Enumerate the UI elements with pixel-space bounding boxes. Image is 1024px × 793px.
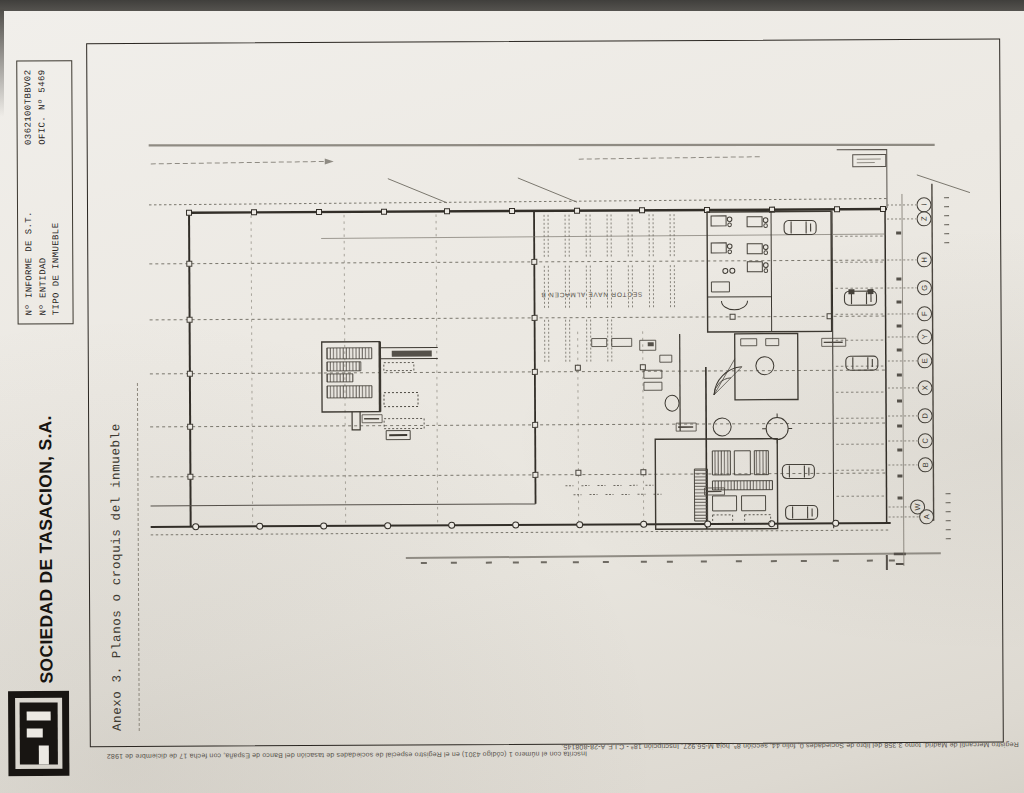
page-content: Nº INFORME DE S.T. 0362100TBBV02 Nº ENTI… bbox=[0, 0, 1024, 793]
axis-bubbles: IZHGFYEXDCBWA bbox=[887, 198, 934, 524]
plan-outline bbox=[149, 209, 941, 574]
floor-plan-drawing: IZHGFYEXDCBWA SECTOR NAVE ALMACEN B bbox=[0, 0, 1024, 793]
office-block-bottom bbox=[655, 414, 793, 530]
svg-text:X: X bbox=[920, 385, 929, 390]
dimension-annotation bbox=[944, 198, 951, 539]
parked-cars bbox=[781, 220, 879, 519]
plan-text-boxes bbox=[362, 338, 847, 497]
svg-text:Z: Z bbox=[920, 216, 929, 221]
dimension-ticks bbox=[421, 560, 895, 562]
column-grid-lines bbox=[149, 212, 887, 524]
svg-text:D: D bbox=[921, 413, 930, 419]
svg-text:W: W bbox=[913, 502, 922, 510]
svg-text:F: F bbox=[920, 311, 929, 316]
north-label-box bbox=[837, 150, 887, 209]
meeting-rooms bbox=[592, 334, 799, 432]
svg-text:A: A bbox=[922, 514, 931, 519]
svg-text:B: B bbox=[921, 462, 930, 467]
scanned-document-page: Nº INFORME DE S.T. 0362100TBBV02 Nº ENTI… bbox=[0, 0, 1024, 793]
svg-text:I: I bbox=[919, 204, 928, 206]
column-markers bbox=[187, 207, 888, 530]
svg-text:H: H bbox=[920, 257, 929, 262]
svg-text:G: G bbox=[920, 285, 929, 291]
svg-text:C: C bbox=[921, 438, 930, 444]
office-block-top bbox=[707, 211, 832, 332]
sector-label: SECTOR NAVE ALMACEN B bbox=[541, 291, 643, 299]
svg-text:Y: Y bbox=[920, 334, 929, 339]
plan-leader-diagonals bbox=[149, 175, 970, 205]
svg-text:E: E bbox=[920, 358, 929, 363]
plan-top-lines bbox=[149, 141, 935, 165]
